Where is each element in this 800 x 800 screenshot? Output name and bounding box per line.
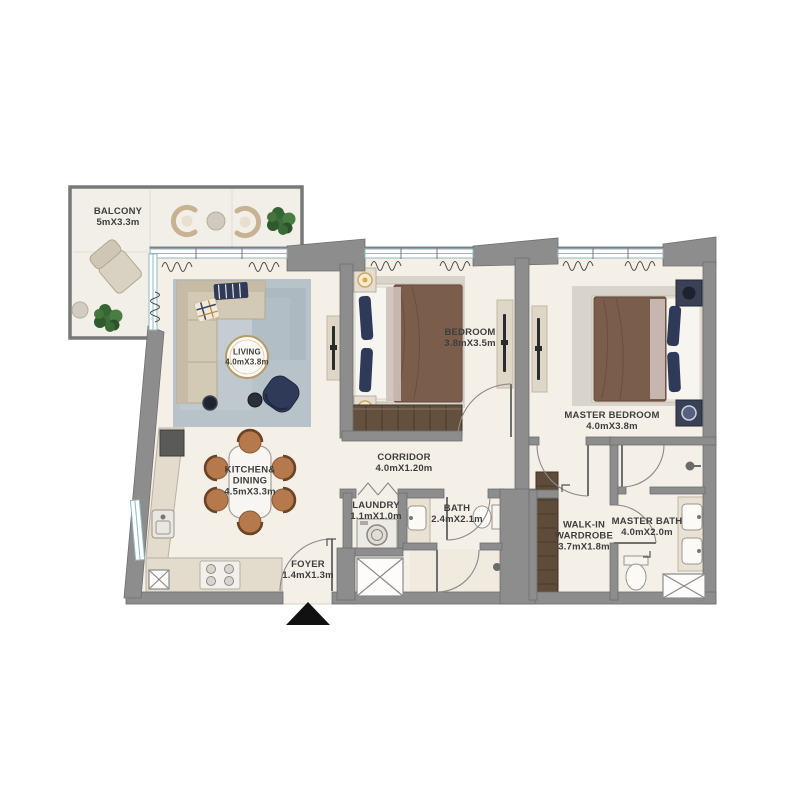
master-bed-icon — [592, 296, 702, 402]
room-name: BATH — [431, 503, 482, 514]
room-name: WALK-IN — [555, 520, 613, 531]
room-name: MASTER BATH — [612, 516, 683, 527]
room-label-bath: BATH 2.4mX2.1m — [431, 503, 482, 525]
room-dims: 5mX3.3m — [94, 217, 142, 228]
room-label-walk-in-wardrobe: WALK-IN WARDROBE 3.7mX1.8m — [555, 520, 613, 553]
room-name: LIVING — [225, 348, 269, 358]
nightstand-icon — [676, 400, 702, 426]
room-dims: 4.0mX3.8m — [564, 421, 659, 432]
dining-chair-icon — [238, 430, 262, 453]
floor-plan-drawing — [0, 0, 800, 800]
shaft-box-icon — [357, 558, 403, 596]
tv-panel-icon — [497, 300, 513, 388]
entry-arrow-icon — [286, 602, 330, 625]
tv-panel-icon — [327, 316, 341, 380]
balcony-sliding-window — [150, 248, 287, 259]
wardrobe-icon — [350, 405, 462, 435]
room-name: BALCONY — [94, 206, 142, 217]
room-name: DINING — [224, 476, 275, 487]
room-dims: 4.0mX3.8m — [225, 357, 269, 367]
fridge-icon — [160, 430, 184, 456]
room-dims: 3.7mX1.8m — [555, 542, 613, 553]
side-table-icon — [72, 302, 88, 318]
room-dims: 1.4mX1.3m — [282, 570, 333, 581]
room-name: MASTER BEDROOM — [564, 410, 659, 421]
toilet-icon — [624, 556, 648, 590]
room-name: BEDROOM — [444, 327, 495, 338]
room-dims: 1.1mX1.0m — [350, 511, 401, 522]
bedroom-window — [365, 248, 473, 259]
master-window — [558, 248, 663, 259]
striped-pillow-icon — [213, 282, 248, 300]
room-name: CORRIDOR — [376, 452, 433, 463]
room-label-corridor: CORRIDOR 4.0mX1.20m — [376, 452, 433, 474]
room-label-foyer: FOYER 1.4mX1.3m — [282, 559, 333, 581]
room-name: WARDROBE — [555, 531, 613, 542]
dining-chair-icon — [238, 511, 262, 534]
room-label-master-bath: MASTER BATH 4.0mX2.0m — [612, 516, 683, 538]
shower-floor — [410, 549, 500, 593]
room-dims: 2.4mX2.1m — [431, 514, 482, 525]
shaft-box-icon — [663, 574, 705, 598]
room-dims: 4.0mX2.0m — [612, 527, 683, 538]
room-label-bedroom: BEDROOM 3.8mX3.5m — [444, 327, 495, 349]
room-name: FOYER — [282, 559, 333, 570]
shaft-box-icon — [149, 570, 169, 589]
room-label-balcony: BALCONY 5mX3.3m — [94, 206, 142, 228]
sink-icon — [152, 510, 174, 538]
washing-machine-icon — [357, 519, 397, 550]
room-label-living: LIVING 4.0mX3.8m — [225, 348, 269, 367]
floor-plan: BALCONY 5mX3.3m LIVING 4.0mX3.8m BEDROOM… — [0, 0, 800, 800]
nightstand-icon — [354, 268, 376, 292]
room-dims: 4.5mX3.3m — [224, 487, 275, 498]
tv-panel-icon — [532, 306, 547, 392]
room-label-laundry: LAUNDRY 1.1mX1.0m — [350, 500, 401, 522]
room-name: KITCHEN& — [224, 465, 275, 476]
room-dims: 4.0mX1.20m — [376, 463, 433, 474]
room-name: LAUNDRY — [350, 500, 401, 511]
bath-vanity-icon — [404, 497, 430, 545]
room-dims: 3.8mX3.5m — [444, 338, 495, 349]
room-label-kitchen-dining: KITCHEN& DINING 4.5mX3.3m — [224, 465, 275, 498]
side-table-icon — [203, 396, 217, 410]
side-table-icon — [248, 393, 262, 407]
room-label-master-bedroom: MASTER BEDROOM 4.0mX3.8m — [564, 410, 659, 432]
balcony-table-icon — [207, 212, 225, 230]
nightstand-icon — [676, 280, 702, 306]
stove-icon — [200, 561, 240, 589]
